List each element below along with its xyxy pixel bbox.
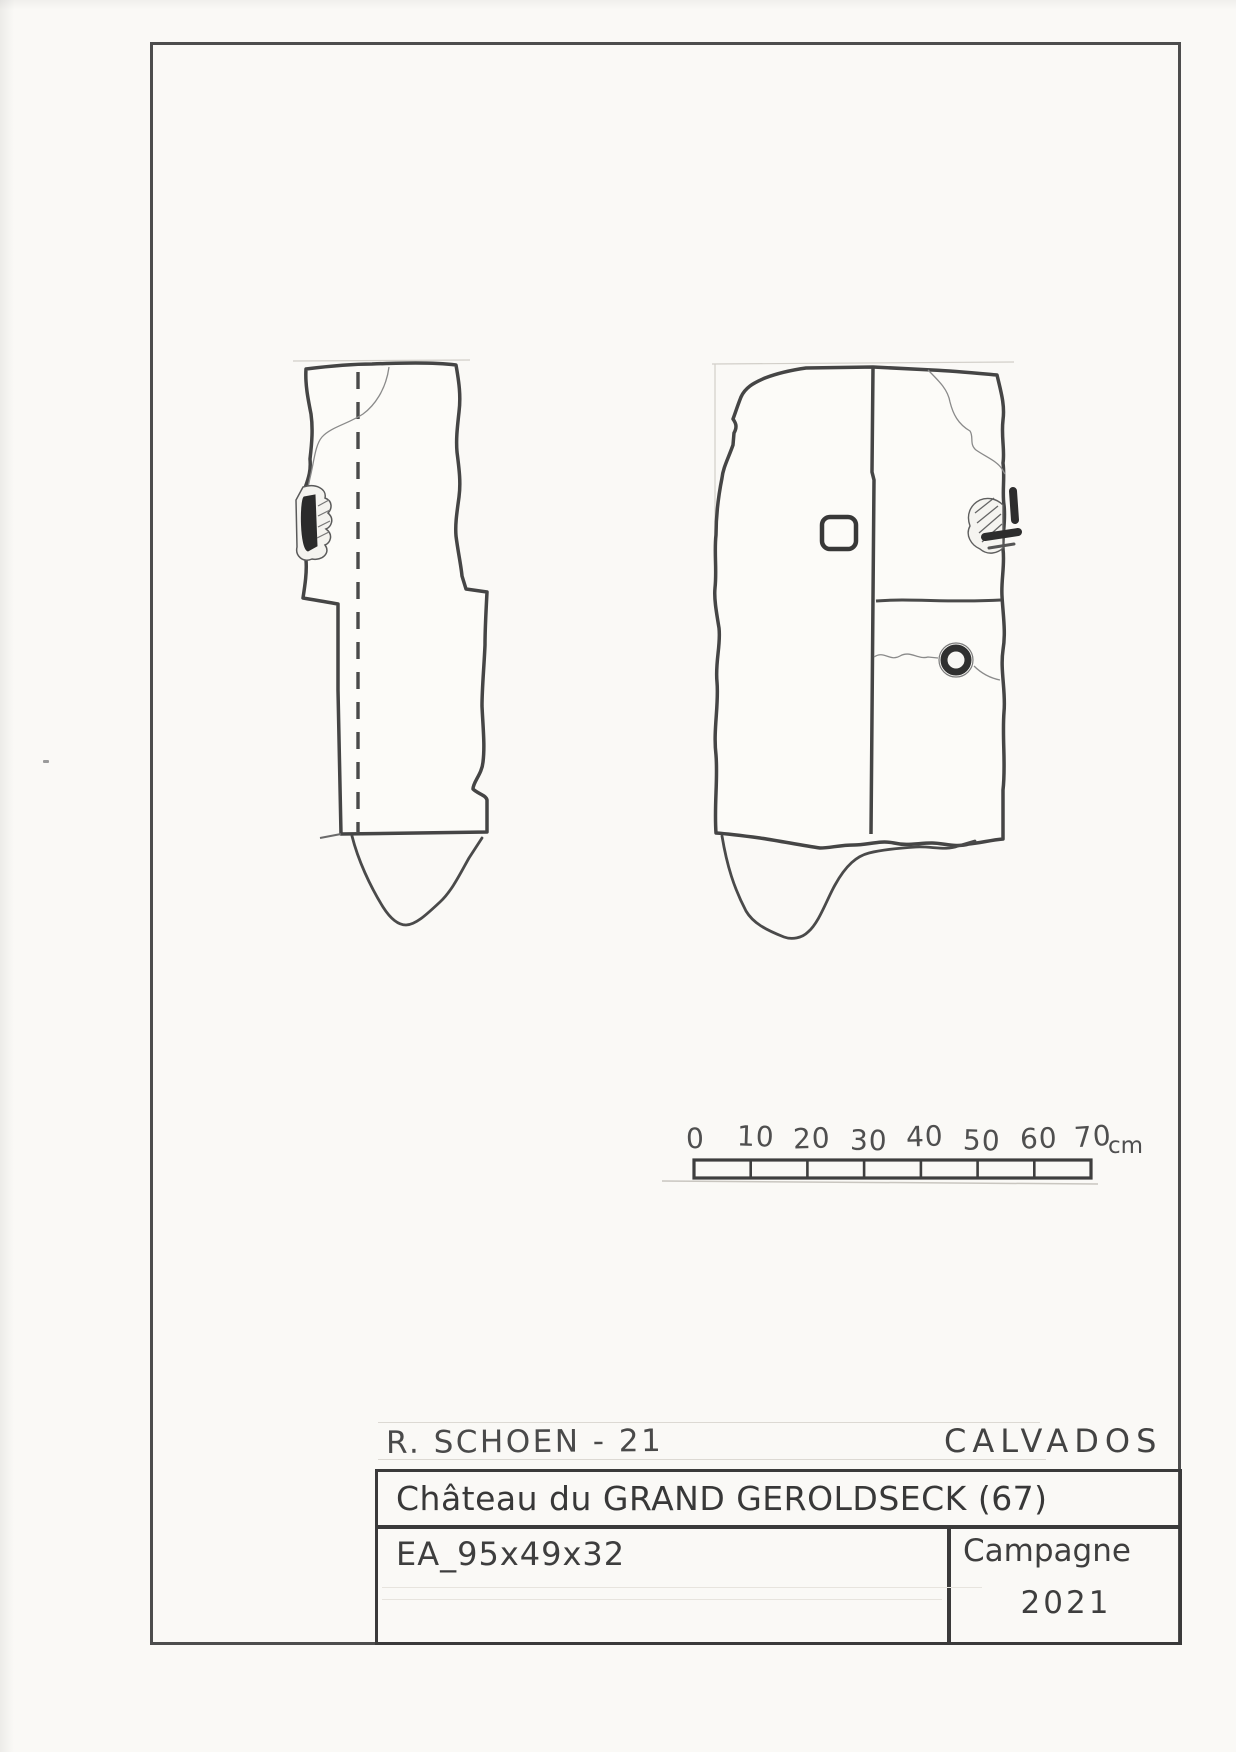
scale-bar-underline [662, 1181, 1098, 1184]
left-stone-drawing [296, 363, 487, 925]
right-stone-broken-bottom [722, 836, 975, 938]
right-stone-drawing [715, 367, 1018, 938]
scanned-drawing-sheet: 0 10 20 30 40 50 60 70 cm R. SCHOEN - 21… [0, 0, 1236, 1752]
ruled-guideline [382, 1587, 982, 1588]
title-block: Château du GRAND GEROLDSECK (67) EA_95x4… [375, 1469, 1182, 1645]
scale-label-30: 30 [850, 1124, 888, 1158]
right-stone-joint-line [876, 600, 1001, 601]
author-line: R. SCHOEN - 21 [386, 1423, 664, 1461]
title-block-row2: EA_95x49x32 Campagne 2021 [378, 1529, 1179, 1642]
right-stone-outline [715, 367, 1005, 848]
ruled-guideline [378, 1422, 1040, 1423]
scale-bar-body [694, 1160, 1091, 1178]
scale-bar [662, 1160, 1098, 1184]
scale-label-0: 0 [685, 1122, 705, 1156]
left-stone-bottom-overhang [320, 834, 341, 838]
scale-label-40: 40 [905, 1119, 944, 1153]
scale-label-20: 20 [792, 1121, 831, 1155]
scale-label-10: 10 [736, 1119, 775, 1153]
department-label: CALVADOS [944, 1422, 1162, 1460]
campaign-label: Campagne [963, 1533, 1169, 1569]
scale-label-70: 70 [1073, 1119, 1113, 1155]
scale-label-60: 60 [1019, 1121, 1058, 1155]
title-block-site-title: Château du GRAND GEROLDSECK (67) [378, 1472, 1179, 1529]
left-stone-broken-bottom [352, 836, 482, 925]
scale-label-50: 50 [962, 1123, 1001, 1157]
artifact-reference: EA_95x49x32 [396, 1535, 625, 1573]
ruled-guideline [382, 1599, 942, 1600]
campaign-cell: Campagne 2021 [947, 1529, 1179, 1642]
artifact-reference-cell: EA_95x49x32 [378, 1529, 947, 1642]
campaign-year: 2021 [1021, 1585, 1112, 1621]
scale-unit-label: cm [1108, 1133, 1143, 1159]
right-stone-ring [944, 648, 968, 672]
